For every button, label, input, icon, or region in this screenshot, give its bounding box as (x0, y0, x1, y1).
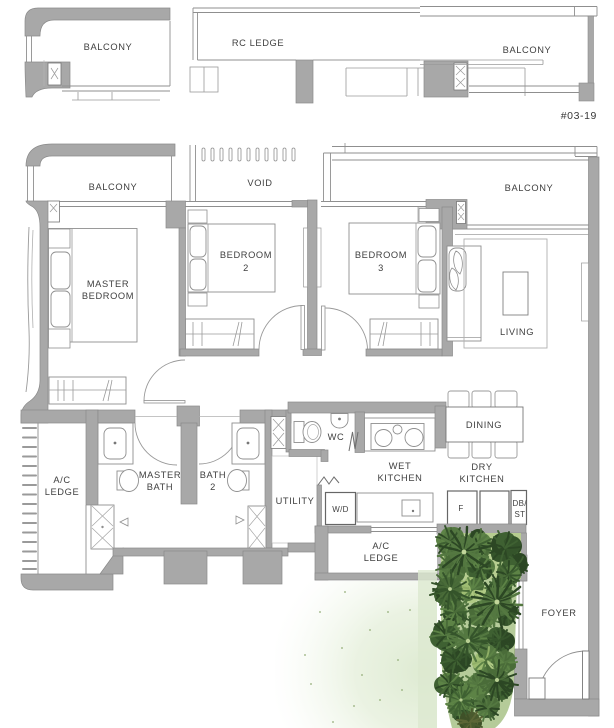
svg-text:BATH: BATH (200, 470, 227, 480)
svg-text:A/C: A/C (372, 541, 389, 551)
svg-text:F: F (458, 504, 463, 513)
svg-text:BALCONY: BALCONY (89, 182, 138, 192)
svg-text:KITCHEN: KITCHEN (377, 473, 422, 483)
svg-text:DRY: DRY (471, 462, 492, 472)
svg-text:#03-19: #03-19 (561, 110, 597, 122)
svg-text:UTILITY: UTILITY (276, 496, 315, 506)
svg-text:BEDROOM: BEDROOM (220, 250, 272, 260)
svg-text:LEDGE: LEDGE (364, 553, 399, 563)
svg-text:BALCONY: BALCONY (505, 183, 554, 193)
svg-text:W/D: W/D (332, 505, 348, 514)
svg-text:BATH: BATH (147, 482, 174, 492)
svg-text:WC: WC (328, 432, 345, 442)
svg-text:MASTER: MASTER (87, 279, 129, 289)
svg-text:BALCONY: BALCONY (84, 42, 133, 52)
svg-text:2: 2 (210, 482, 216, 492)
svg-text:BALCONY: BALCONY (503, 45, 552, 55)
svg-text:DB/: DB/ (513, 499, 528, 508)
svg-text:MASTER: MASTER (139, 470, 181, 480)
svg-text:LIVING: LIVING (500, 327, 534, 337)
svg-text:FOYER: FOYER (541, 608, 576, 618)
svg-text:BEDROOM: BEDROOM (82, 291, 134, 301)
svg-text:ST: ST (515, 510, 526, 519)
svg-text:3: 3 (378, 263, 384, 273)
svg-text:VOID: VOID (247, 178, 272, 188)
svg-text:BEDROOM: BEDROOM (355, 250, 407, 260)
svg-text:LEDGE: LEDGE (45, 487, 80, 497)
svg-text:RC LEDGE: RC LEDGE (232, 38, 284, 48)
svg-text:DINING: DINING (466, 420, 502, 430)
svg-text:KITCHEN: KITCHEN (459, 474, 504, 484)
svg-text:A/C: A/C (53, 475, 70, 485)
svg-text:2: 2 (243, 263, 249, 273)
svg-text:WET: WET (389, 461, 411, 471)
